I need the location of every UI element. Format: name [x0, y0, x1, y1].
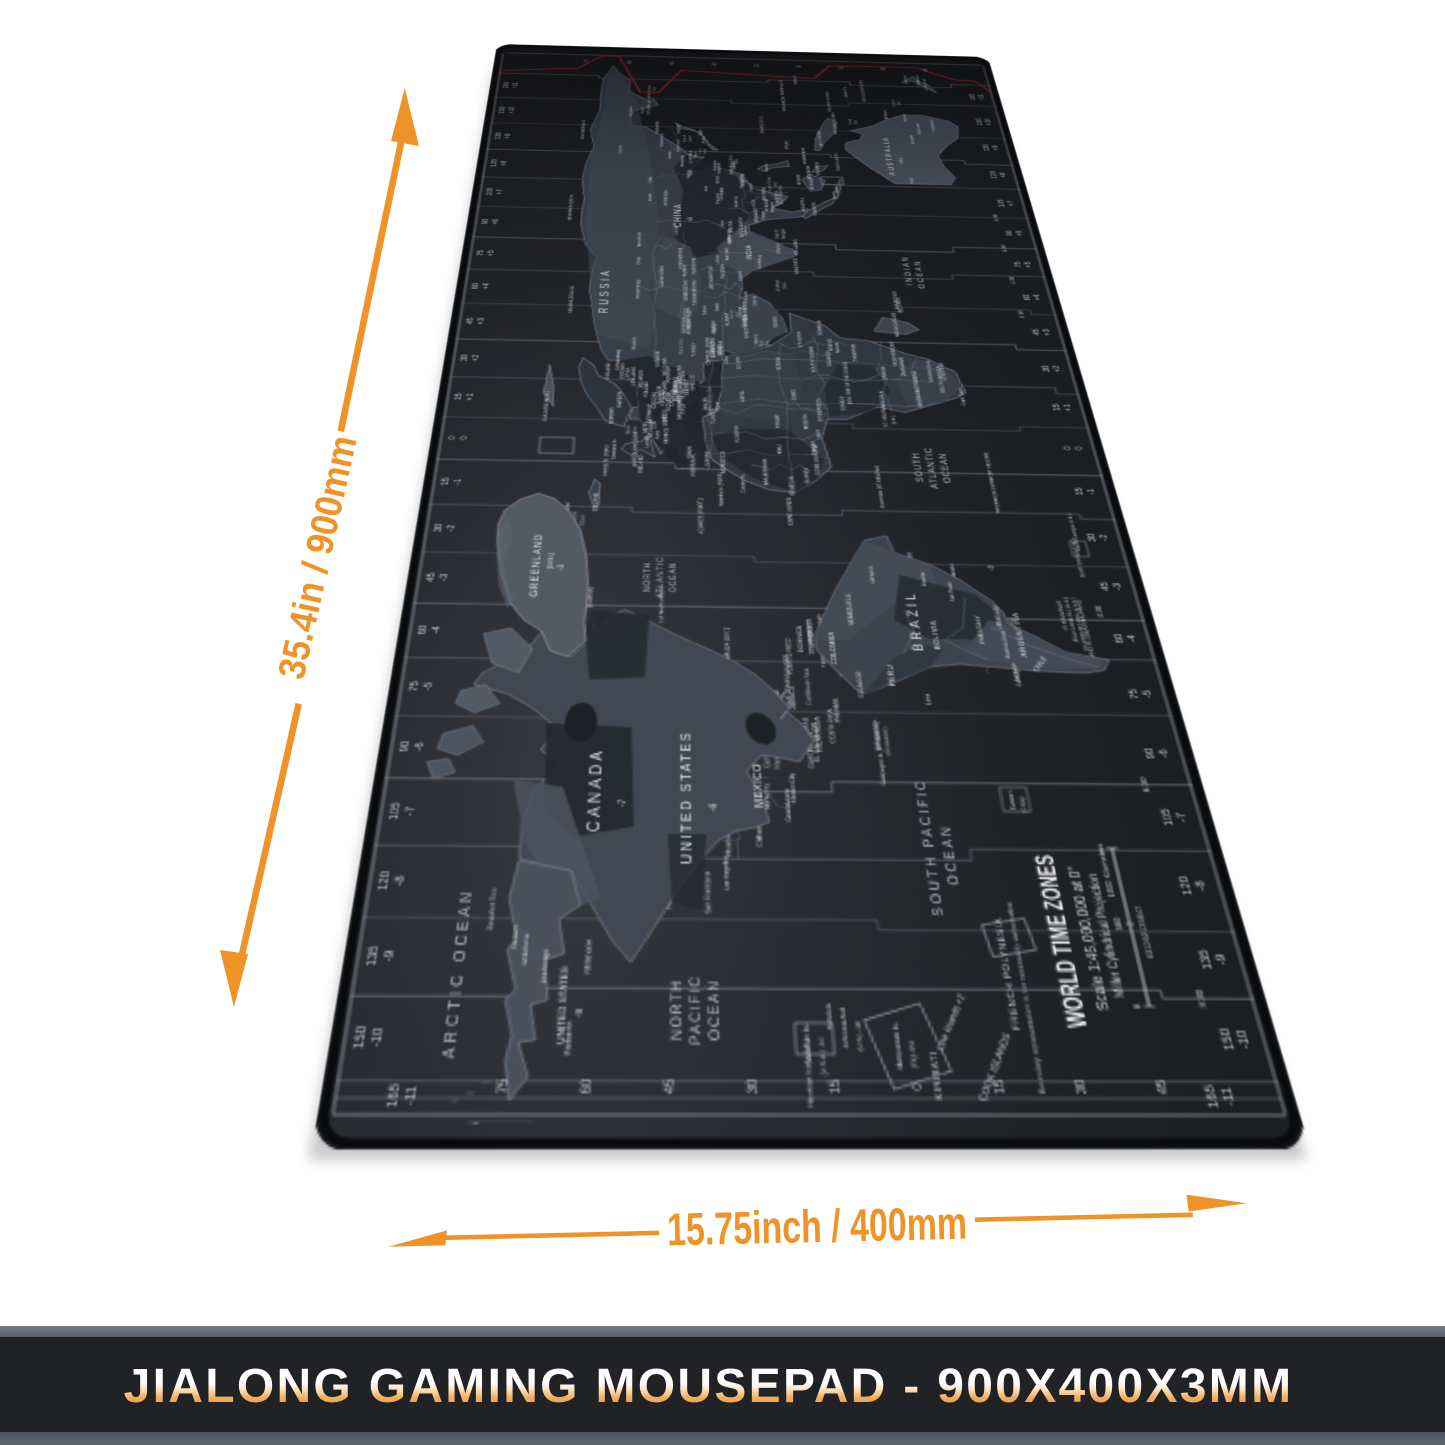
svg-text:15.75inch / 400mm: 15.75inch / 400mm — [666, 1197, 967, 1256]
svg-text:35.4in / 900mm: 35.4in / 900mm — [271, 432, 366, 683]
